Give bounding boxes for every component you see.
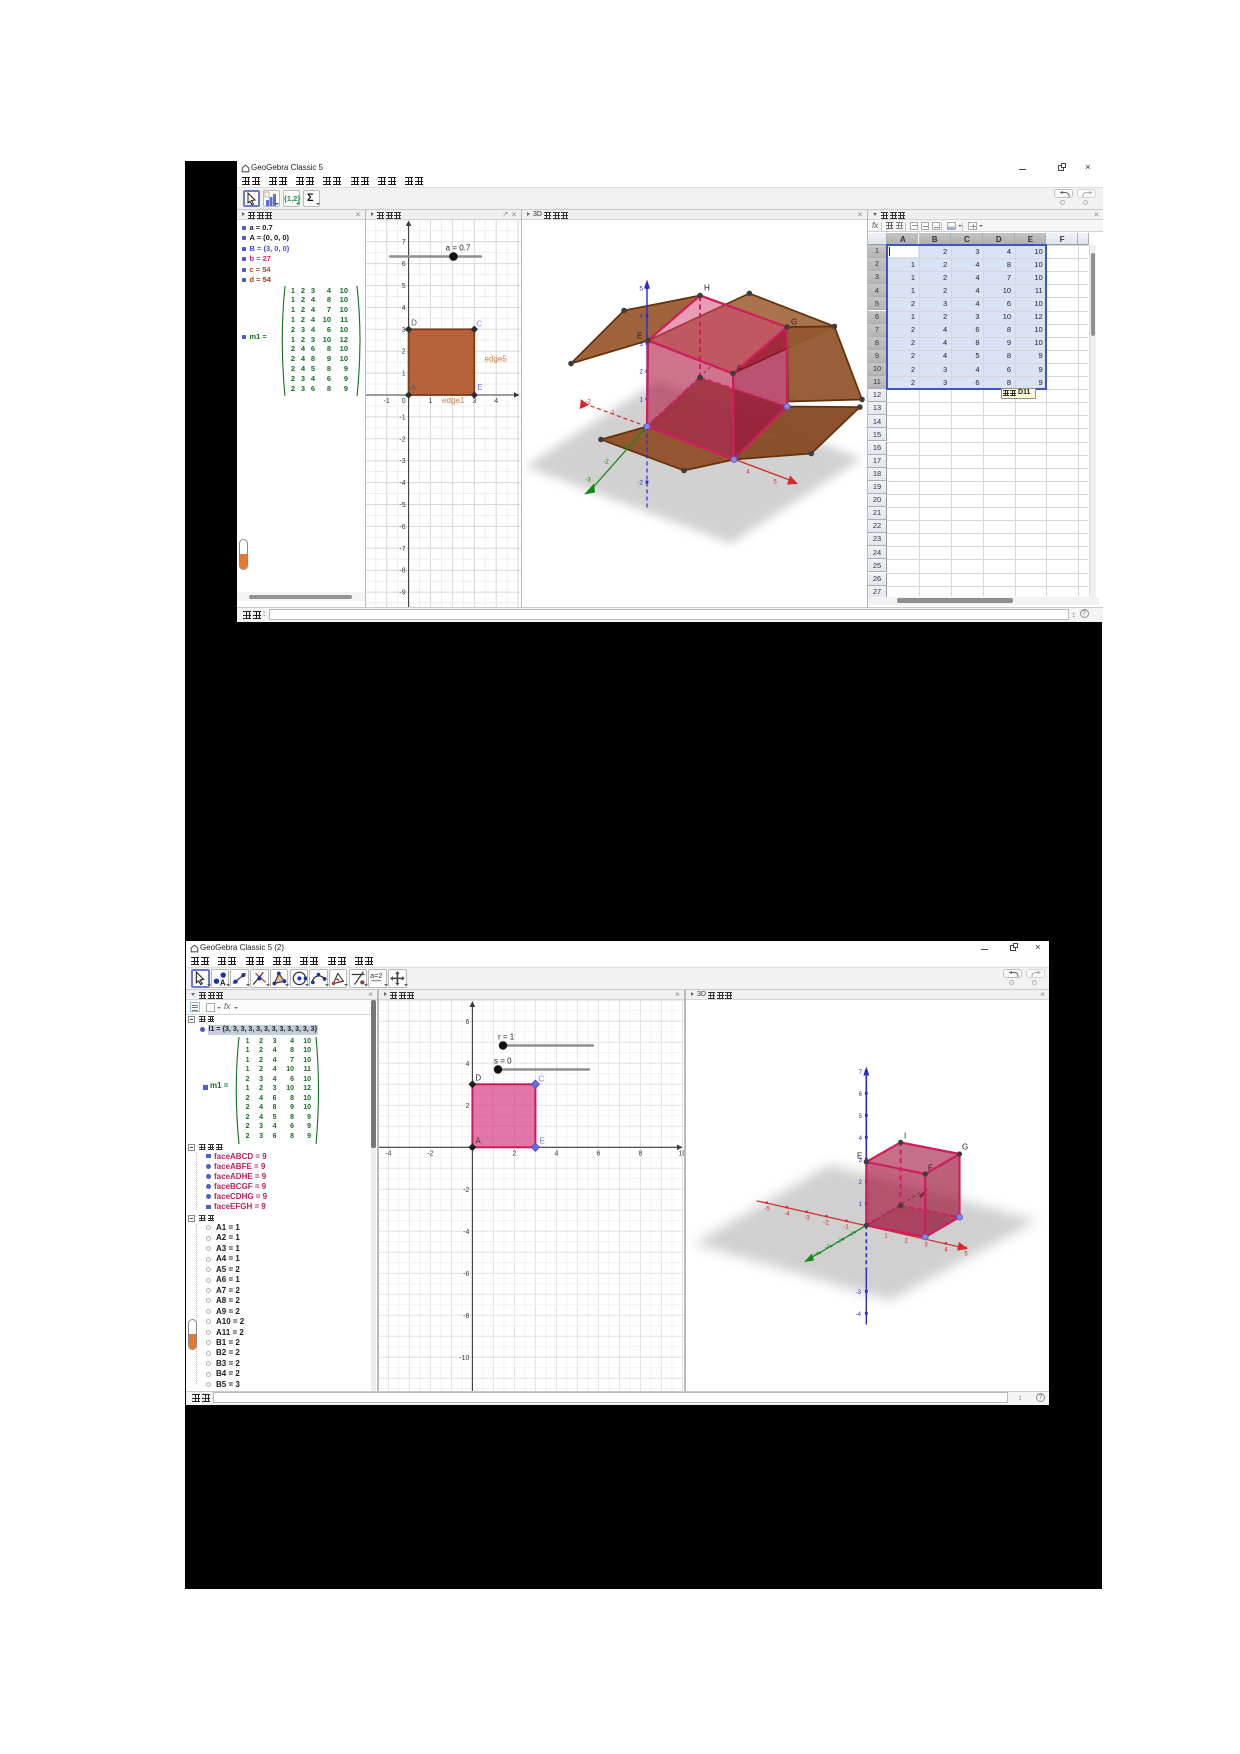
svg-text:-4: -4: [385, 1150, 391, 1157]
svg-text:D: D: [475, 1073, 481, 1082]
svg-text:-2: -2: [399, 436, 405, 443]
svg-text:7: 7: [402, 239, 406, 246]
svg-text:4: 4: [859, 1135, 863, 1141]
svg-text:-2: -2: [837, 1238, 842, 1244]
svg-text:-1: -1: [384, 398, 390, 405]
svg-text:4: 4: [554, 1150, 558, 1157]
svg-text:-10: -10: [459, 1354, 469, 1361]
svg-text:-7: -7: [399, 545, 405, 552]
svg-text:-8: -8: [463, 1312, 469, 1319]
svg-text:5: 5: [639, 285, 643, 292]
svg-text:-5: -5: [764, 1206, 770, 1212]
svg-text:3: 3: [639, 340, 643, 347]
svg-text:s = 0: s = 0: [494, 1056, 512, 1065]
svg-text:-5: -5: [399, 502, 405, 509]
svg-text:r = 1: r = 1: [498, 1032, 515, 1041]
svg-text:-2: -2: [585, 399, 591, 405]
svg-text:3: 3: [402, 326, 406, 333]
svg-text:edge8: edge8: [759, 432, 779, 439]
svg-text:5: 5: [859, 1113, 863, 1119]
svg-text:-8: -8: [399, 567, 405, 574]
svg-text:-3: -3: [804, 1215, 810, 1221]
svg-text:3: 3: [472, 398, 476, 405]
svg-text:4: 4: [402, 304, 406, 311]
svg-text:B: B: [737, 451, 741, 458]
svg-text:10: 10: [679, 1150, 684, 1157]
svg-text:0: 0: [402, 398, 406, 405]
svg-text:-1: -1: [609, 410, 615, 416]
svg-text:4: 4: [465, 1060, 469, 1067]
svg-text:edge1: edge1: [442, 396, 465, 405]
svg-text:-9: -9: [399, 589, 405, 596]
svg-text:-3: -3: [399, 458, 405, 465]
svg-text:E: E: [637, 331, 642, 340]
svg-text:2: 2: [512, 1150, 516, 1157]
svg-text:E: E: [477, 383, 482, 392]
svg-text:-6: -6: [399, 523, 405, 530]
svg-text:-2: -2: [637, 479, 643, 486]
svg-text:-2: -2: [463, 1186, 469, 1193]
svg-text:C: C: [790, 397, 795, 404]
svg-text:-2: -2: [427, 1150, 433, 1157]
svg-text:6: 6: [596, 1150, 600, 1157]
svg-text:4: 4: [639, 313, 643, 320]
svg-text:-2: -2: [603, 459, 609, 465]
svg-text:-4: -4: [463, 1228, 469, 1235]
svg-text:5: 5: [402, 283, 406, 290]
svg-text:a = 0.7: a = 0.7: [446, 243, 471, 252]
svg-text:-1: -1: [620, 442, 626, 448]
svg-text:8: 8: [638, 1150, 642, 1157]
svg-text:6: 6: [402, 261, 406, 268]
svg-text:G: G: [962, 1142, 968, 1151]
svg-text:-3: -3: [585, 477, 591, 483]
svg-text:-2: -2: [823, 1220, 829, 1226]
svg-text:-4: -4: [856, 1311, 862, 1317]
svg-text:2: 2: [402, 348, 406, 355]
svg-text:4: 4: [494, 398, 498, 405]
svg-text:2: 2: [465, 1102, 469, 1109]
svg-text:D: D: [411, 318, 417, 327]
svg-text:-1: -1: [849, 1231, 854, 1237]
svg-text:F: F: [737, 364, 742, 373]
svg-text:-4: -4: [814, 1251, 819, 1257]
svg-text:A: A: [475, 1136, 481, 1145]
svg-text:1: 1: [402, 370, 406, 377]
svg-text:-6: -6: [463, 1270, 469, 1277]
svg-text:-1: -1: [399, 414, 405, 421]
svg-text:1: 1: [429, 398, 433, 405]
svg-text:6: 6: [465, 1018, 469, 1025]
svg-text:2: 2: [639, 368, 643, 375]
svg-text:C: C: [476, 319, 482, 328]
svg-text:C: C: [538, 1074, 544, 1083]
svg-text:H: H: [704, 283, 710, 292]
svg-text:I: I: [904, 1131, 906, 1140]
svg-text:6: 6: [859, 1091, 863, 1097]
svg-text:7: 7: [859, 1069, 863, 1075]
svg-text:edge5: edge5: [485, 354, 508, 363]
svg-text:-3: -3: [856, 1289, 862, 1295]
svg-text:-1: -1: [843, 1224, 849, 1230]
svg-text:1: 1: [639, 396, 643, 403]
svg-text:-3: -3: [825, 1244, 830, 1250]
svg-text:F: F: [928, 1163, 933, 1172]
svg-text:A: A: [220, 979, 226, 987]
svg-text:-4: -4: [399, 480, 405, 487]
svg-text:A: A: [411, 383, 417, 392]
svg-text:E: E: [539, 1136, 544, 1145]
svg-text:-4: -4: [784, 1211, 790, 1217]
svg-text:E: E: [857, 1151, 862, 1160]
